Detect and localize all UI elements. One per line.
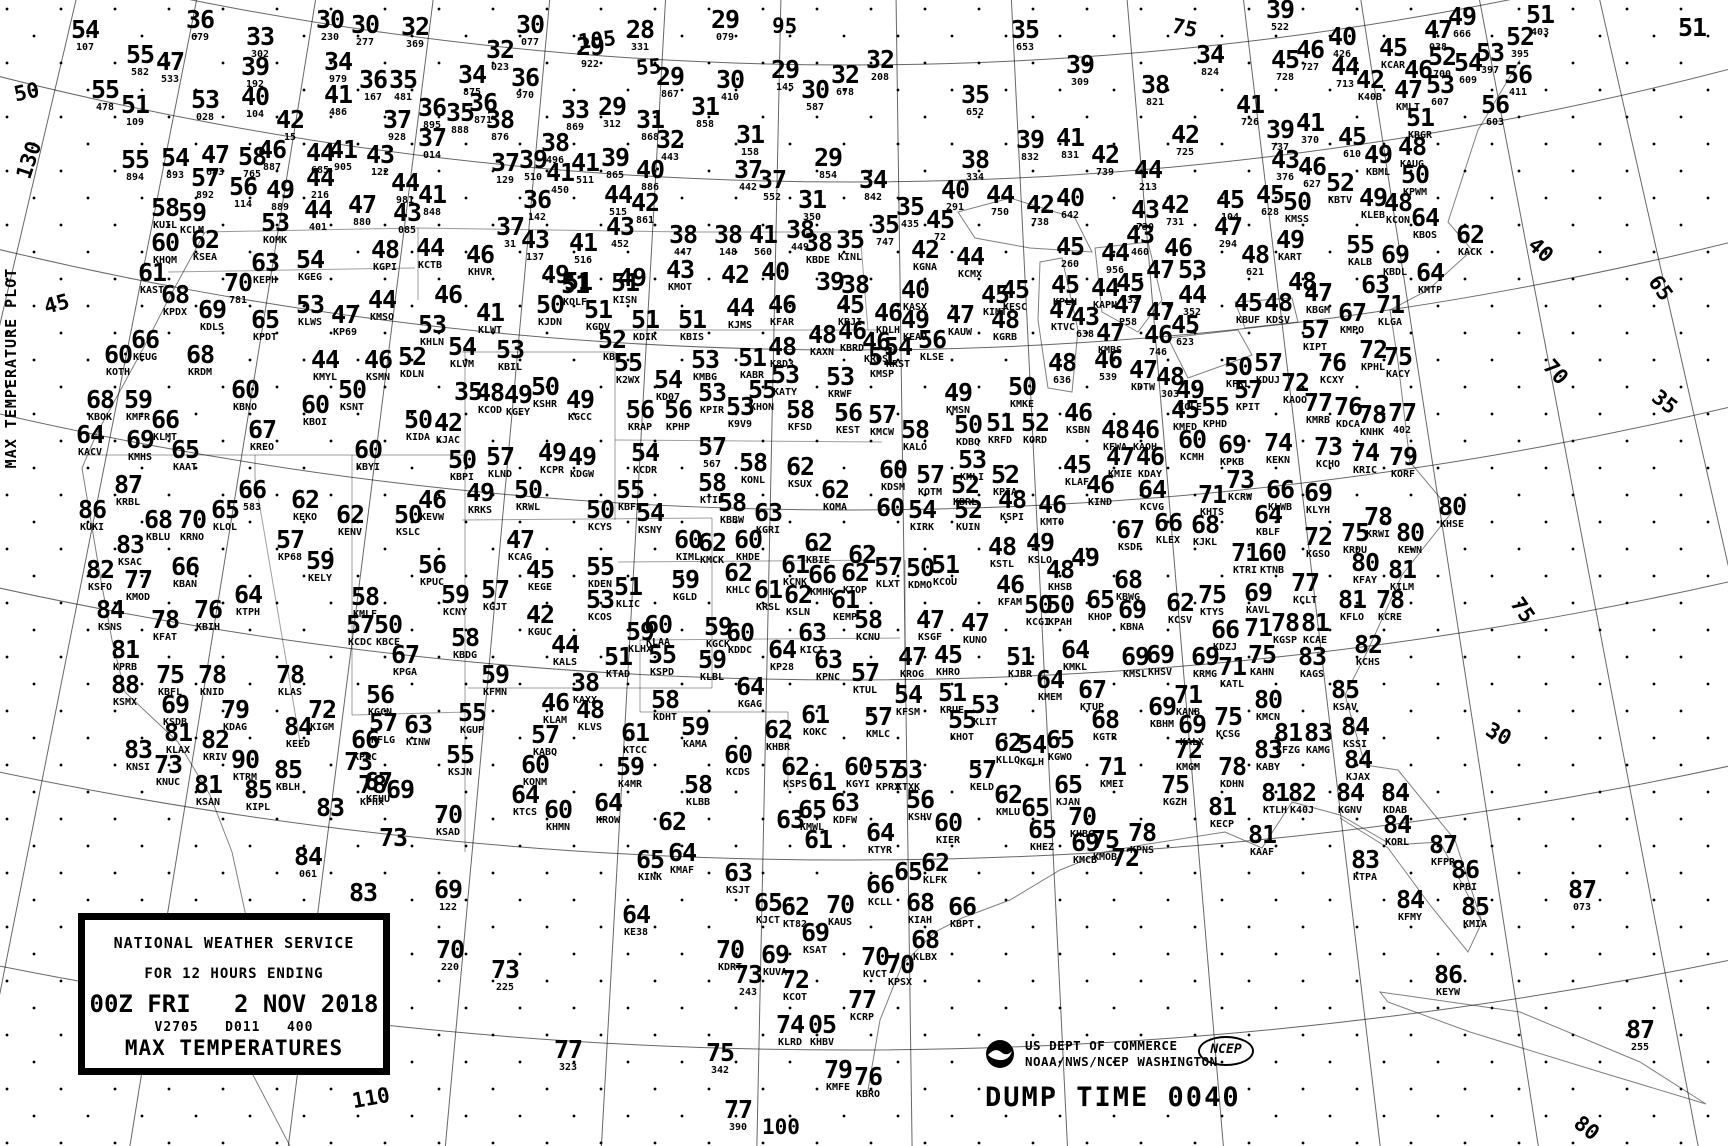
legend-period: FOR 12 HOURS ENDING xyxy=(85,966,383,982)
commerce-text: US DEPT OF COMMERCE NOAA/NWS/NCEP WASHIN… xyxy=(1025,1038,1218,1069)
legend-product-title: MAX TEMPERATURES xyxy=(85,1036,383,1060)
graticule-label: 100 xyxy=(762,1115,800,1139)
side-axis-title: MAX TEMPERATURE PLOT xyxy=(2,268,20,469)
legend-agency: NATIONAL WEATHER SERVICE xyxy=(85,934,383,952)
max-temperature-map: 5410755582475335547851109366795302833302… xyxy=(0,0,1728,1146)
graticule-label: 50 xyxy=(12,78,42,107)
graticule-label: 105 xyxy=(577,26,617,54)
commerce-line1: US DEPT OF COMMERCE xyxy=(1025,1038,1218,1054)
commerce-line2: NOAA/NWS/NCEP WASHINGTON xyxy=(1025,1054,1218,1070)
dump-time-label: DUMP TIME 0040 xyxy=(985,1082,1241,1113)
commerce-block: US DEPT OF COMMERCE NOAA/NWS/NCEP WASHIN… xyxy=(985,1038,1218,1069)
graticule-label: 75 xyxy=(1170,14,1200,43)
graticule-label: 95 xyxy=(772,14,798,39)
legend-box: NATIONAL WEATHER SERVICE FOR 12 HOURS EN… xyxy=(78,913,390,1075)
legend-version: V2705 D011 400 xyxy=(85,1020,383,1035)
noaa-eagle-icon xyxy=(985,1039,1015,1069)
graticule-label: 55 xyxy=(635,54,662,80)
ncep-logo: NCEP xyxy=(1198,1036,1254,1066)
legend-valid-time: 00Z FRI 2 NOV 2018 xyxy=(85,990,383,1018)
